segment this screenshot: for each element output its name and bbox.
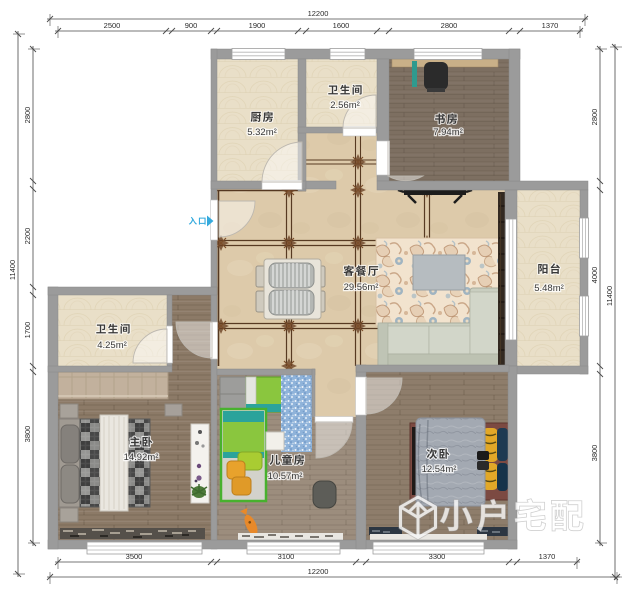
svg-text:3500: 3500	[126, 552, 143, 561]
svg-text:12200: 12200	[308, 567, 329, 576]
svg-text:2800: 2800	[590, 109, 599, 126]
svg-text:900: 900	[185, 21, 198, 30]
svg-text:5.32m²: 5.32m²	[247, 127, 277, 138]
svg-text:2.56m²: 2.56m²	[330, 100, 360, 111]
svg-text:1600: 1600	[333, 21, 350, 30]
svg-text:2800: 2800	[23, 107, 32, 124]
svg-text:3300: 3300	[429, 552, 446, 561]
svg-text:1700: 1700	[23, 322, 32, 339]
svg-text:12.54m²: 12.54m²	[422, 464, 457, 475]
svg-text:14.92m²: 14.92m²	[124, 452, 159, 463]
svg-text:1370: 1370	[542, 21, 559, 30]
svg-text:2200: 2200	[23, 228, 32, 245]
svg-text:1370: 1370	[539, 552, 556, 561]
svg-text:12200: 12200	[308, 9, 329, 18]
svg-text:2500: 2500	[104, 21, 121, 30]
svg-text:1900: 1900	[249, 21, 266, 30]
svg-text:11400: 11400	[8, 260, 17, 280]
svg-text:4000: 4000	[590, 267, 599, 284]
svg-text:3100: 3100	[278, 552, 295, 561]
svg-text:7.94m²: 7.94m²	[433, 127, 463, 138]
svg-text:3800: 3800	[590, 445, 599, 462]
svg-text:2800: 2800	[441, 21, 458, 30]
svg-text:29.56m²: 29.56m²	[344, 282, 379, 293]
svg-text:11400: 11400	[605, 286, 614, 306]
svg-text:4.25m²: 4.25m²	[97, 340, 127, 351]
svg-text:3800: 3800	[23, 426, 32, 443]
svg-text:10.57m²: 10.57m²	[268, 471, 303, 482]
svg-text:5.48m²: 5.48m²	[534, 283, 564, 294]
